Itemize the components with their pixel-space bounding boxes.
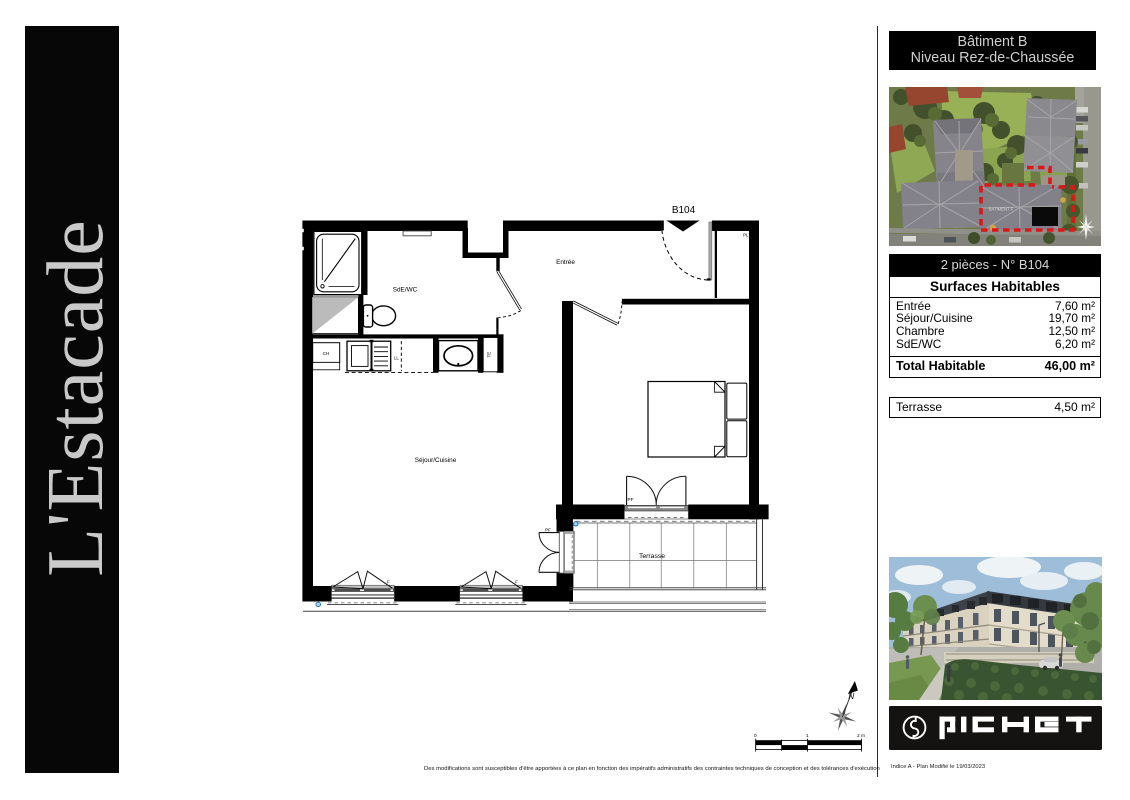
- svg-text:PL: PL: [743, 233, 749, 238]
- svg-text:CH: CH: [323, 351, 330, 356]
- svg-text:Entrée: Entrée: [556, 259, 575, 266]
- svg-text:LL: LL: [394, 356, 399, 361]
- svg-text:B104: B104: [672, 205, 696, 216]
- svg-text:BATIMENT F: BATIMENT F: [989, 207, 1014, 212]
- svg-text:F: F: [387, 580, 390, 585]
- svg-text:PF: PF: [545, 527, 551, 532]
- svg-text:N: N: [848, 692, 854, 701]
- svg-text:1: 1: [806, 733, 809, 739]
- svg-text:2 m: 2 m: [857, 733, 865, 739]
- svg-text:SdE/WC: SdE/WC: [393, 287, 418, 294]
- svg-text:0: 0: [754, 733, 757, 739]
- svg-text:F: F: [515, 580, 518, 585]
- svg-text:PF: PF: [628, 497, 634, 502]
- svg-text:TE: TE: [487, 352, 492, 358]
- svg-text:Séjour/Cuisine: Séjour/Cuisine: [415, 457, 457, 464]
